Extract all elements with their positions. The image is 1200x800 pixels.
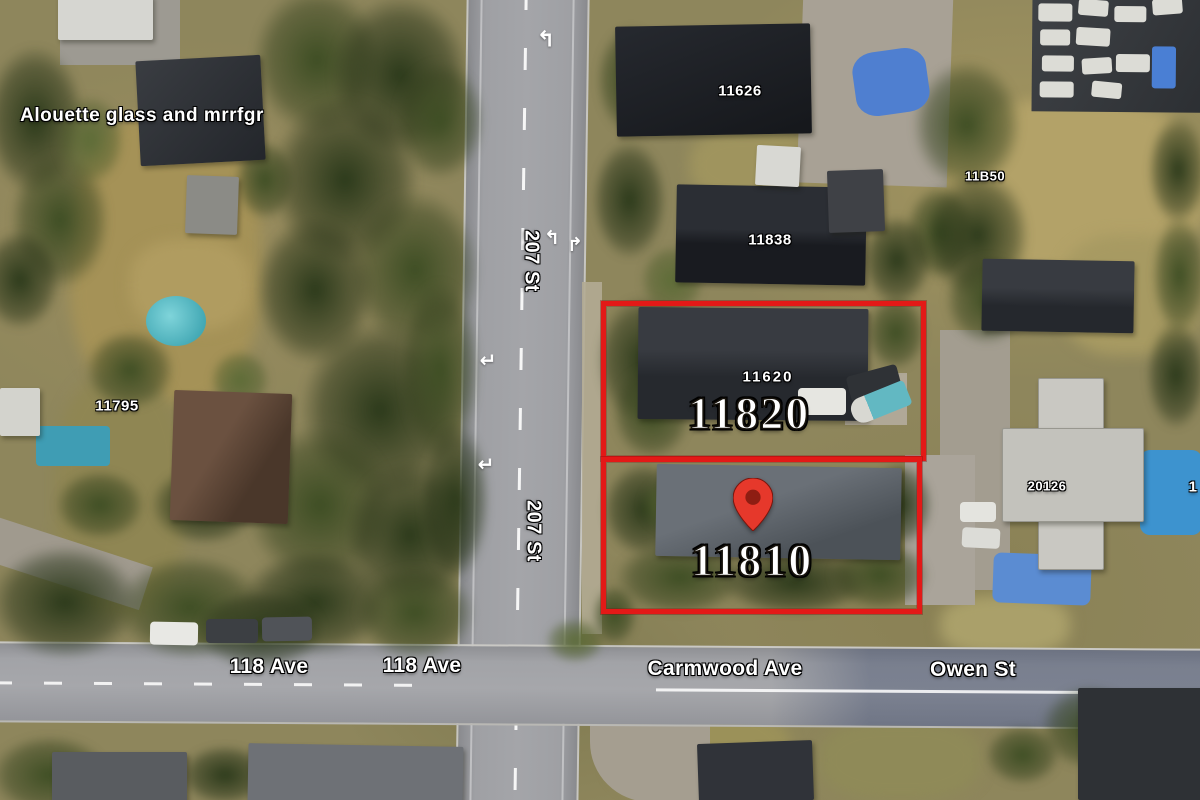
lane-arrow-left-icon: ↵ [480, 348, 497, 372]
junkyard-vehicle [1038, 3, 1072, 21]
swimming-pool [146, 296, 206, 346]
tree-canopy [1146, 320, 1200, 430]
junkyard-vehicle [1042, 55, 1074, 71]
tree-canopy [55, 470, 145, 540]
tree-canopy [985, 725, 1060, 785]
lane-arrow-straight-right-icon: ↱ [567, 234, 583, 256]
junkyard-vehicle [1116, 54, 1150, 72]
parked-car [962, 527, 1001, 549]
lane-arrow-left-icon: ↵ [478, 452, 495, 476]
junkyard-vehicle [1091, 81, 1122, 100]
parked-car [960, 502, 996, 522]
street-label-carmwood-ave: Carmwood Ave [648, 657, 803, 681]
house-roof [52, 752, 187, 800]
building-roof [58, 0, 153, 40]
lane-arrow-left-icon: ↰ [537, 28, 555, 53]
building-roof-20126-wing [1002, 428, 1144, 522]
house-roof [981, 259, 1134, 334]
street-label-207-st-upper: 207 St [520, 230, 543, 292]
shed-roof [827, 169, 885, 233]
lane-arrow-left-icon: ↰ [544, 227, 560, 249]
address-label-partial: 1 [1189, 479, 1198, 496]
tree-canopy [1148, 115, 1200, 225]
rv-trailer [755, 145, 801, 187]
tree-canopy [355, 565, 475, 660]
building-roof [0, 388, 40, 436]
street-label-118-ave-west: 118 Ave [230, 655, 309, 679]
tree-canopy [1152, 215, 1200, 335]
parked-car [206, 619, 258, 643]
blue-tarp [850, 45, 932, 119]
poi-label-alouette: Alouette glass and mrrfgr [20, 105, 264, 127]
house-roof [248, 743, 464, 800]
lane-dashes [0, 681, 442, 687]
tree-canopy [592, 140, 667, 260]
street-label-207-st-lower: 207 St [522, 500, 545, 562]
address-label-20126: 20126 [1028, 479, 1067, 494]
satellite-map-canvas[interactable]: ↰ ↰ ↱ ↵ ↵ Alouette glass and mrrfgr 1162… [0, 0, 1200, 800]
house-roof [697, 740, 814, 800]
junkyard-vehicle-blue [1152, 46, 1176, 88]
house-roof-11626 [615, 23, 812, 136]
address-label-11795: 11795 [95, 398, 138, 415]
house-roof [1078, 688, 1200, 800]
swimming-pool [36, 426, 110, 466]
street-label-owen-st: Owen St [930, 658, 1016, 682]
junkyard-vehicle [1152, 0, 1183, 16]
parcel-number-11820: 11820 [688, 387, 810, 440]
junkyard-vehicle [1081, 57, 1112, 75]
address-label-11838: 11838 [748, 232, 791, 249]
red-map-pin-icon[interactable] [733, 478, 773, 531]
junkyard-vehicle [1114, 6, 1146, 22]
parcel-number-11810: 11810 [691, 534, 813, 587]
shed-roof [185, 175, 239, 235]
tree-canopy [420, 420, 490, 580]
parked-car [262, 617, 312, 642]
junkyard-vehicle [1040, 81, 1074, 97]
house-roof-11795 [170, 390, 292, 524]
vehicle-lot [1031, 0, 1200, 113]
street-label-118-ave-east: 118 Ave [383, 654, 462, 678]
junkyard-vehicle [1040, 29, 1070, 45]
parked-car [150, 622, 198, 646]
address-label-top-right: 11B50 [965, 169, 1005, 184]
junkyard-vehicle [1078, 0, 1109, 17]
address-label-11620-roof: 11620 [743, 369, 794, 386]
dry-lawn [820, 720, 980, 800]
address-label-11626: 11626 [718, 83, 761, 100]
junkyard-vehicle [1076, 27, 1111, 47]
